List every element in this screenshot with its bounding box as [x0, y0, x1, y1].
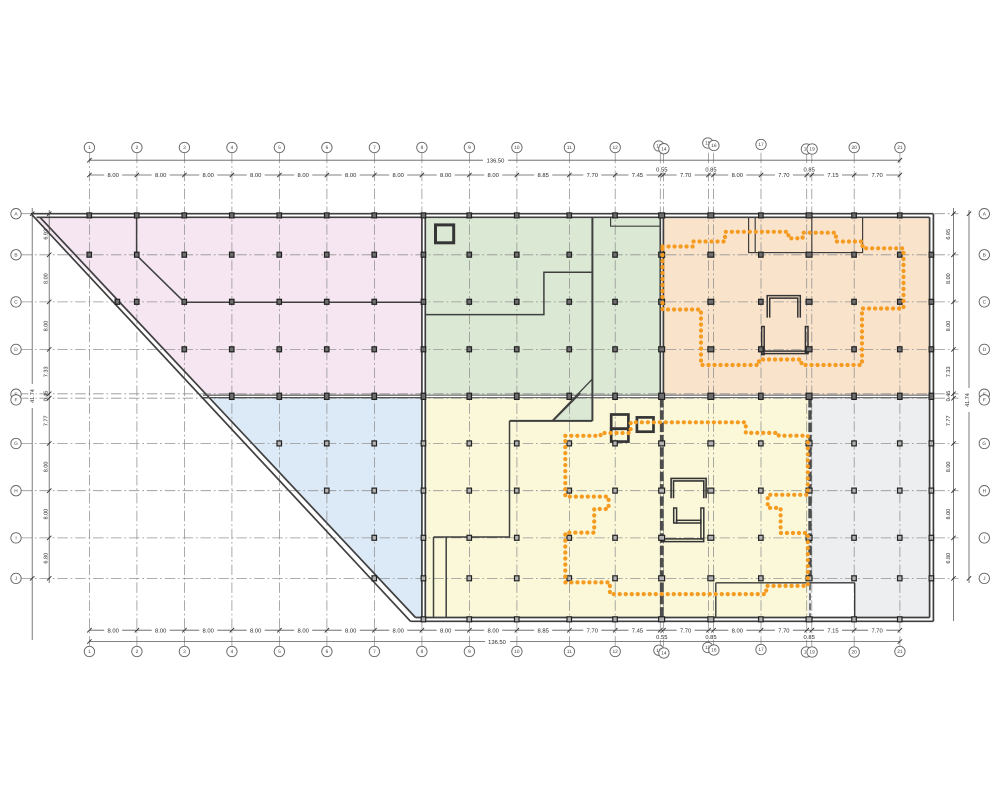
svg-text:8.00: 8.00 [946, 321, 952, 332]
svg-text:F: F [983, 398, 986, 404]
svg-text:8.00: 8.00 [298, 627, 309, 634]
svg-text:8.00: 8.00 [43, 462, 49, 473]
svg-text:7.70: 7.70 [871, 627, 882, 634]
svg-text:8.00: 8.00 [108, 172, 119, 179]
svg-text:8.85: 8.85 [538, 172, 549, 179]
svg-text:5: 5 [278, 649, 281, 655]
svg-text:14: 14 [661, 651, 667, 657]
svg-text:5: 5 [278, 145, 281, 151]
svg-text:8.00: 8.00 [732, 627, 743, 634]
svg-text:8.00: 8.00 [393, 627, 404, 634]
svg-text:3: 3 [183, 145, 186, 151]
svg-text:10: 10 [514, 145, 520, 151]
svg-text:8.00: 8.00 [946, 509, 952, 520]
svg-text:8: 8 [421, 649, 424, 655]
svg-text:8.00: 8.00 [488, 627, 499, 634]
svg-text:4: 4 [231, 145, 234, 151]
svg-text:12: 12 [613, 145, 619, 151]
svg-text:0.85: 0.85 [804, 167, 815, 174]
svg-text:8.00: 8.00 [203, 627, 214, 634]
svg-text:2: 2 [136, 649, 139, 655]
svg-text:1: 1 [88, 649, 91, 655]
svg-text:8.00: 8.00 [946, 462, 952, 473]
svg-text:7.70: 7.70 [778, 627, 789, 634]
svg-text:H: H [983, 488, 987, 494]
svg-text:7.77: 7.77 [946, 415, 952, 426]
svg-text:4: 4 [231, 649, 234, 655]
svg-text:8.00: 8.00 [43, 321, 49, 332]
svg-text:C: C [14, 300, 18, 306]
svg-text:G: G [982, 441, 986, 447]
svg-text:16: 16 [711, 143, 717, 149]
svg-text:6.80: 6.80 [43, 553, 49, 564]
svg-text:7.45: 7.45 [632, 173, 643, 179]
svg-text:11: 11 [567, 649, 572, 655]
svg-text:136.50: 136.50 [488, 639, 506, 646]
svg-text:7: 7 [373, 145, 376, 151]
svg-text:8.00: 8.00 [440, 627, 451, 634]
svg-text:8.00: 8.00 [345, 172, 356, 179]
svg-text:8.00: 8.00 [298, 172, 309, 179]
svg-text:21: 21 [897, 145, 903, 151]
svg-text:14: 14 [661, 146, 667, 152]
svg-text:19: 19 [809, 147, 815, 153]
svg-text:7.77: 7.77 [43, 415, 49, 426]
svg-text:I: I [15, 536, 16, 542]
svg-text:D: D [14, 347, 18, 353]
svg-text:7.15: 7.15 [827, 173, 838, 179]
svg-text:I: I [984, 536, 985, 542]
svg-text:7.45: 7.45 [632, 628, 643, 634]
svg-text:0.45: 0.45 [43, 391, 49, 402]
svg-text:C: C [983, 300, 987, 306]
svg-text:8.00: 8.00 [43, 509, 49, 520]
svg-text:3: 3 [183, 649, 186, 655]
svg-text:0.55: 0.55 [656, 167, 667, 174]
svg-text:6: 6 [326, 145, 329, 151]
svg-text:136.50: 136.50 [487, 157, 505, 164]
svg-text:8.00: 8.00 [108, 627, 119, 634]
svg-text:8.00: 8.00 [946, 273, 952, 284]
svg-text:8.00: 8.00 [43, 273, 49, 284]
svg-text:7.70: 7.70 [587, 627, 598, 634]
svg-text:6.95: 6.95 [946, 229, 952, 240]
svg-text:17: 17 [758, 142, 764, 148]
svg-text:8.00: 8.00 [155, 172, 166, 179]
svg-text:8.85: 8.85 [538, 627, 549, 634]
svg-text:17: 17 [758, 647, 764, 653]
svg-text:B: B [983, 253, 986, 259]
svg-text:2: 2 [136, 145, 139, 151]
svg-text:6.80: 6.80 [946, 553, 952, 564]
svg-text:7.33: 7.33 [946, 366, 952, 377]
svg-text:7.33: 7.33 [43, 366, 49, 377]
svg-text:12: 12 [613, 649, 619, 655]
svg-text:7.70: 7.70 [587, 172, 598, 179]
svg-text:0.45: 0.45 [946, 391, 952, 402]
svg-text:41.74: 41.74 [30, 389, 36, 403]
svg-text:0.55: 0.55 [656, 634, 667, 641]
svg-text:41.74: 41.74 [965, 393, 971, 407]
svg-text:H: H [14, 488, 18, 494]
svg-text:B: B [14, 253, 17, 259]
svg-text:8.00: 8.00 [732, 172, 743, 179]
svg-text:8.00: 8.00 [203, 172, 214, 179]
svg-text:6: 6 [326, 649, 329, 655]
svg-text:8.00: 8.00 [250, 172, 261, 179]
svg-text:F: F [15, 398, 18, 404]
svg-text:8.00: 8.00 [345, 627, 356, 634]
svg-text:7.70: 7.70 [778, 172, 789, 179]
svg-text:8.00: 8.00 [155, 627, 166, 634]
svg-text:0.85: 0.85 [705, 634, 716, 641]
svg-text:0.85: 0.85 [804, 634, 815, 641]
svg-text:7.70: 7.70 [680, 627, 691, 634]
svg-text:19: 19 [809, 650, 815, 656]
svg-text:20: 20 [852, 145, 858, 151]
svg-text:8.00: 8.00 [440, 172, 451, 179]
svg-text:7.70: 7.70 [680, 172, 691, 179]
svg-text:1: 1 [88, 145, 91, 151]
svg-text:7.15: 7.15 [827, 628, 838, 634]
svg-text:21: 21 [897, 649, 903, 655]
svg-text:11: 11 [567, 145, 572, 151]
svg-text:9: 9 [468, 649, 471, 655]
svg-text:10: 10 [514, 649, 520, 655]
svg-text:9: 9 [468, 145, 471, 151]
svg-text:7.70: 7.70 [871, 172, 882, 179]
svg-text:8.00: 8.00 [250, 627, 261, 634]
svg-text:8: 8 [421, 145, 424, 151]
svg-text:7: 7 [373, 649, 376, 655]
svg-text:G: G [14, 441, 18, 447]
svg-text:20: 20 [852, 650, 858, 656]
svg-text:16: 16 [711, 648, 717, 654]
svg-text:0.85: 0.85 [705, 167, 716, 174]
svg-text:D: D [983, 347, 987, 353]
svg-text:8.00: 8.00 [393, 172, 404, 179]
svg-text:8.00: 8.00 [488, 172, 499, 179]
